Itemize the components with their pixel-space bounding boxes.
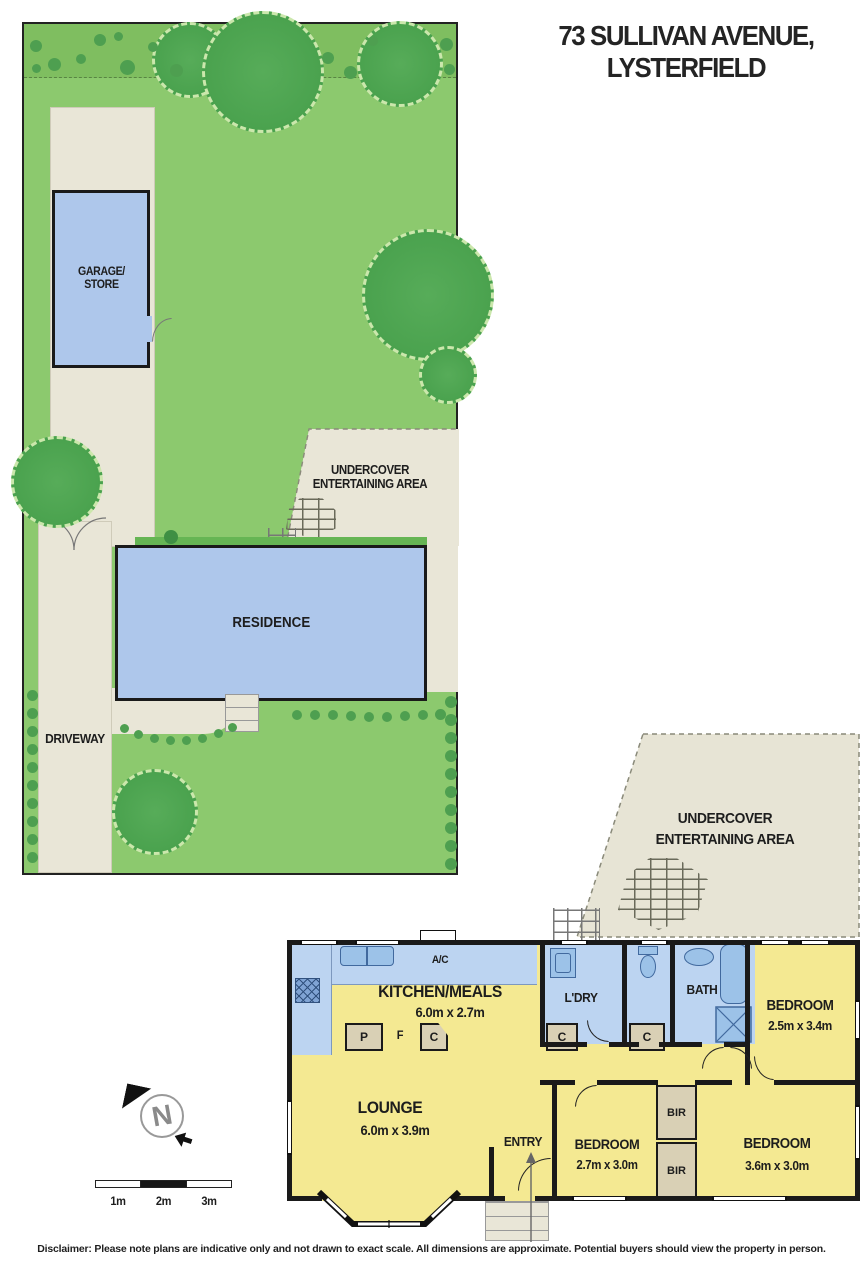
wall (540, 1042, 587, 1047)
floorplan-page: 73 SULLIVAN AVENUE, LYSTERFIELD UNDERCOV… (0, 0, 863, 1265)
bush-icon (445, 822, 457, 834)
scale-label-2m: 2m (142, 1194, 185, 1208)
wall (489, 1147, 494, 1201)
tree-icon (11, 436, 103, 528)
room-label-bedroom2: BEDROOM (561, 1136, 653, 1152)
room-label-bedroom1: BEDROOM (754, 998, 846, 1014)
bush-icon (228, 723, 237, 732)
wall (552, 1080, 557, 1201)
bush-icon (368, 36, 378, 46)
residence-area: RESIDENCE (115, 545, 427, 701)
bay-window (313, 1184, 465, 1234)
plan-undercover-label: UNDERCOVER ENTERTAINING AREA (647, 808, 803, 850)
wall (774, 1080, 855, 1085)
dwelling-floorplan: P F C C C BIR BIR (287, 938, 860, 1204)
driveway-label: DRIVEWAY (37, 731, 112, 746)
tree-icon (419, 346, 477, 404)
room-dims-lounge: 6.0m x 3.9m (312, 1122, 478, 1138)
bush-icon (182, 736, 191, 745)
residence-label: RESIDENCE (232, 615, 310, 631)
bush-icon (418, 710, 428, 720)
scale-seg-2 (140, 1180, 187, 1188)
window (572, 1196, 627, 1201)
window (287, 1100, 292, 1155)
bush-icon (382, 712, 392, 722)
title-line1: 73 SULLIVAN AVENUE, (526, 20, 846, 52)
wall (540, 940, 545, 1047)
bush-icon (27, 780, 38, 791)
bush-icon (440, 38, 453, 51)
cooktop-icon (295, 978, 320, 1003)
north-compass-icon: N (118, 1086, 202, 1160)
bush-icon (150, 734, 159, 743)
bush-icon (445, 750, 457, 762)
wall (724, 1042, 750, 1047)
garage-door-gap (145, 316, 152, 342)
window (560, 940, 588, 945)
bush-icon (292, 710, 302, 720)
scale-label-3m: 3m (188, 1194, 230, 1208)
wall (597, 1080, 658, 1085)
pantry-cabinet: P (345, 1023, 383, 1051)
cupboard-label: C (430, 1030, 439, 1044)
toilet-bowl-icon (640, 955, 656, 978)
bush-icon (344, 66, 357, 79)
garage-area: GARAGE/ STORE (52, 190, 150, 368)
compass-ring: N (140, 1094, 184, 1138)
bush-icon (27, 726, 38, 737)
bush-icon (214, 729, 223, 738)
bush-icon (148, 42, 158, 52)
kitchen-sink-icon (340, 946, 394, 966)
bush-icon (120, 724, 129, 733)
bush-icon (27, 852, 38, 863)
bir-label: BIR (667, 1165, 686, 1177)
bush-icon (445, 804, 457, 816)
wall (622, 940, 627, 1047)
laundry-trough-icon (550, 948, 576, 978)
room-dims-bedroom1: 2.5m x 3.4m (754, 1018, 846, 1033)
built-in-robe: BIR (656, 1142, 697, 1200)
page-title: 73 SULLIVAN AVENUE, LYSTERFIELD (512, 20, 860, 84)
trough-bowl (555, 953, 571, 973)
bush-icon (445, 858, 457, 870)
room-dims-bedroom2: 2.7m x 3.0m (561, 1158, 653, 1172)
scale-label-1m: 1m (97, 1194, 139, 1208)
window (855, 1105, 860, 1160)
window (300, 940, 338, 945)
disclaimer-text: Disclaimer: Please note plans are indica… (0, 1243, 863, 1255)
bush-icon (27, 816, 38, 827)
room-label-lounge: LOUNGE (307, 1098, 473, 1118)
bush-icon (134, 730, 143, 739)
entry-porch (485, 1201, 549, 1241)
pantry-label: P (360, 1030, 368, 1044)
wall (659, 1042, 702, 1047)
toilet-tank-icon (638, 946, 658, 955)
bush-icon (48, 58, 61, 71)
scale-seg-3 (186, 1180, 232, 1188)
bush-icon (76, 54, 86, 64)
room-label-bath: BATH (674, 982, 729, 997)
title-line2: LYSTERFIELD (526, 52, 846, 84)
basin-icon (684, 948, 714, 966)
bush-icon (32, 64, 41, 73)
cupboard-label: C (643, 1030, 652, 1044)
fridge-label: F (389, 1028, 411, 1042)
bush-icon (328, 710, 338, 720)
room-label-bedroom3: BEDROOM (708, 1136, 846, 1152)
bush-icon (445, 714, 457, 726)
window (355, 940, 400, 945)
built-in-robe: BIR (656, 1085, 697, 1140)
bush-icon (114, 32, 123, 41)
wall (855, 940, 860, 1201)
wall (540, 1080, 575, 1085)
window (712, 1196, 787, 1201)
garage-door-arc (152, 318, 172, 342)
bush-icon (364, 712, 374, 722)
room-label-entry: ENTRY (495, 1134, 550, 1149)
bush-icon (27, 690, 38, 701)
bush-icon (27, 762, 38, 773)
window (640, 940, 668, 945)
site-undercover-label: UNDERCOVER ENTERTAINING AREA (298, 464, 442, 492)
scale-seg-1 (95, 1180, 141, 1188)
bush-icon (346, 711, 356, 721)
bush-icon (445, 768, 457, 780)
bush-icon (322, 52, 334, 64)
bush-icon (310, 710, 320, 720)
window (855, 1000, 860, 1040)
driveway-area (38, 521, 112, 873)
bush-icon (94, 34, 106, 46)
tree-icon (202, 11, 324, 133)
bush-icon (445, 786, 457, 798)
tree-icon (357, 21, 443, 107)
bush-icon (27, 798, 38, 809)
entry-arrow-icon (523, 1152, 539, 1244)
bush-icon (170, 64, 183, 77)
bush-icon (445, 696, 457, 708)
wall (695, 1080, 732, 1085)
bush-icon (166, 736, 175, 745)
bush-icon (198, 734, 207, 743)
tree-icon (362, 229, 494, 361)
bush-icon (445, 840, 457, 852)
ac-label: A/C (420, 954, 460, 966)
room-label-kitchen: KITCHEN/MEALS (357, 982, 523, 1002)
paved-strip-right (425, 545, 458, 692)
bir-label: BIR (667, 1107, 686, 1119)
wall (287, 940, 292, 1201)
bush-icon (120, 60, 135, 75)
room-dims-kitchen: 6.0m x 2.7m (376, 1004, 523, 1020)
bush-icon (444, 64, 455, 75)
bush-icon (27, 708, 38, 719)
room-dims-bedroom3: 3.6m x 3.0m (708, 1158, 846, 1173)
bush-icon (30, 40, 42, 52)
bush-icon (400, 711, 410, 721)
tree-icon (112, 769, 198, 855)
wall (609, 1042, 639, 1047)
bush-icon (27, 744, 38, 755)
window (760, 940, 790, 945)
compass-north-label: N (149, 1098, 174, 1133)
bush-icon (445, 732, 457, 744)
bush-icon (164, 530, 178, 544)
bush-icon (27, 834, 38, 845)
window (800, 940, 830, 945)
site-plan: UNDERCOVER ENTERTAINING AREA GARAGE/ STO… (22, 22, 458, 875)
garage-label: GARAGE/ STORE (78, 266, 125, 291)
scale-bar: 1m 2m 3m (95, 1178, 245, 1210)
room-label-laundry: L'DRY (546, 990, 616, 1005)
